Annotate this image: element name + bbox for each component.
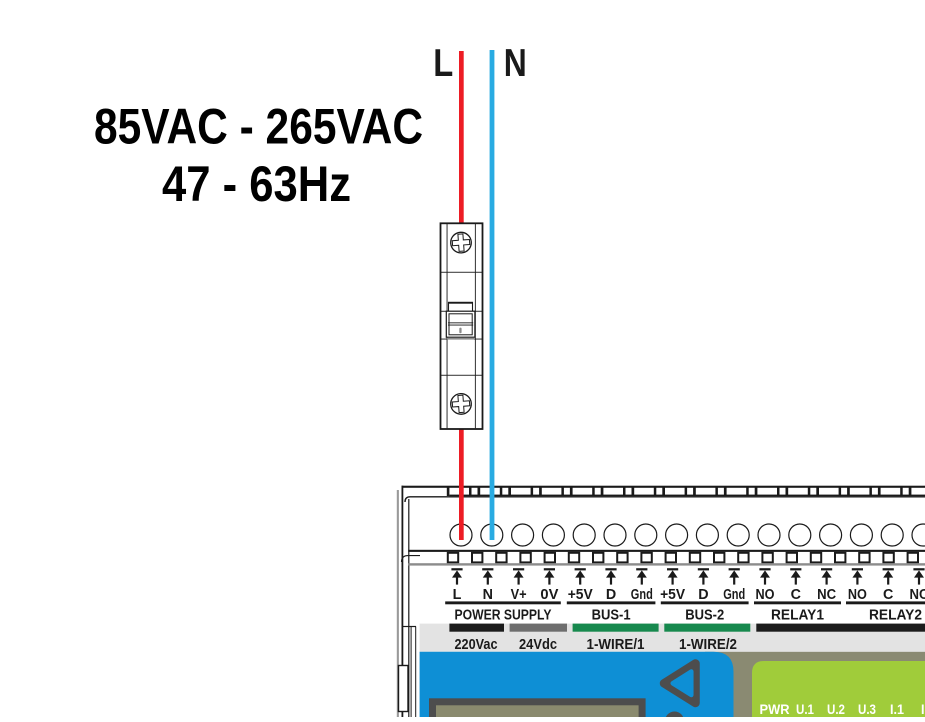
svg-text:NO: NO: [756, 587, 775, 603]
svg-text:47 - 63Hz: 47 - 63Hz: [162, 156, 351, 212]
svg-text:24Vdc: 24Vdc: [519, 636, 557, 653]
svg-text:+5V: +5V: [568, 587, 593, 603]
svg-text:U.3: U.3: [858, 701, 876, 717]
svg-text:+5V: +5V: [660, 587, 685, 603]
svg-text:C: C: [791, 587, 801, 603]
svg-text:NC: NC: [817, 587, 836, 603]
svg-text:D: D: [698, 587, 708, 603]
svg-text:U.2: U.2: [827, 701, 845, 717]
svg-text:0V: 0V: [540, 587, 558, 603]
svg-text:1-WIRE/2: 1-WIRE/2: [679, 636, 737, 653]
svg-text:I.2: I.2: [921, 701, 925, 717]
svg-text:L: L: [433, 42, 453, 85]
svg-text:BUS-2: BUS-2: [685, 606, 724, 623]
svg-text:C: C: [883, 587, 893, 603]
svg-text:NO: NO: [848, 587, 867, 603]
svg-text:RELAY1: RELAY1: [771, 606, 824, 623]
svg-text:BUS-1: BUS-1: [592, 606, 631, 623]
svg-text:RELAY2: RELAY2: [869, 606, 922, 623]
svg-text:U.1: U.1: [796, 701, 814, 717]
svg-text:Gnd: Gnd: [723, 587, 745, 603]
svg-text:I.1: I.1: [890, 701, 904, 717]
svg-text:POWER SUPPLY: POWER SUPPLY: [455, 606, 552, 623]
svg-text:N: N: [483, 587, 493, 603]
svg-text:1-WIRE/1: 1-WIRE/1: [587, 636, 645, 653]
svg-text:V+: V+: [511, 587, 527, 603]
svg-text:NC: NC: [910, 587, 925, 603]
svg-text:85VAC - 265VAC: 85VAC - 265VAC: [94, 99, 423, 155]
svg-text:PWR: PWR: [760, 701, 790, 717]
svg-text:Gnd: Gnd: [631, 587, 653, 603]
svg-text:N: N: [504, 42, 527, 85]
svg-text:220Vac: 220Vac: [455, 636, 498, 653]
svg-text:D: D: [606, 587, 616, 603]
svg-text:L: L: [453, 587, 462, 603]
